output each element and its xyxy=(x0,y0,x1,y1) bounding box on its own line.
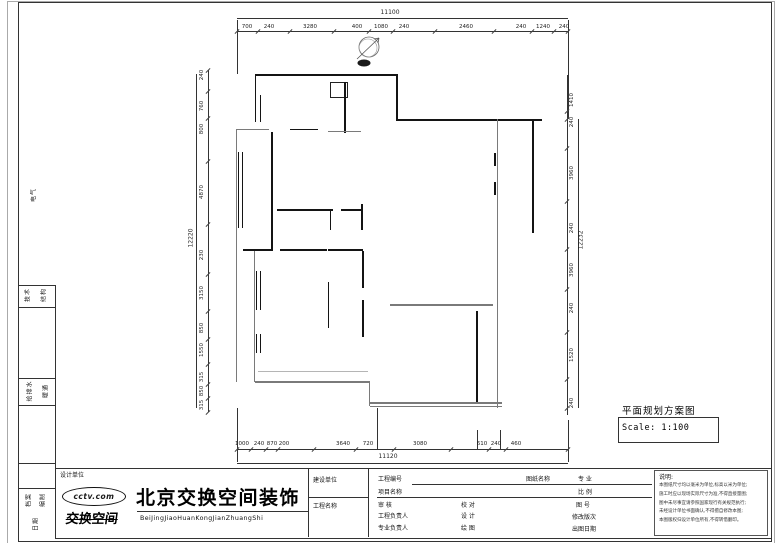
dim-label-left: 3150 xyxy=(199,286,205,300)
scale-row-label: 比 例 xyxy=(578,487,592,496)
drawing-title: 平面规划方案图 xyxy=(622,403,696,417)
wall-segment xyxy=(396,74,398,121)
major-label: 专 业 xyxy=(578,474,592,483)
drawing-frame xyxy=(18,2,772,542)
wall-segment xyxy=(361,204,363,230)
review-label: 审 核 xyxy=(378,500,392,509)
note-line: 本图纸尺寸均以毫米为单位,标高以米为单位; xyxy=(659,482,765,491)
dim-label-left: 760 xyxy=(199,101,205,112)
line xyxy=(308,497,368,498)
wall-segment xyxy=(330,210,331,230)
wall-segment xyxy=(341,209,362,211)
dim-label-bottom: 240 xyxy=(491,441,502,447)
sheet-name-label: 图纸名称 xyxy=(526,474,550,483)
dim-label-right: 1410 xyxy=(569,93,575,107)
discipline-lead-label: 专业负责人 xyxy=(378,523,408,532)
dim-label-left: 240 xyxy=(199,70,205,81)
line xyxy=(18,378,55,379)
dim-label-right: 3960 xyxy=(569,166,575,180)
notes-heading: 说明: xyxy=(659,472,673,481)
line xyxy=(237,408,238,462)
signoff-label: 日期 xyxy=(31,517,40,531)
wall-segment xyxy=(362,251,364,288)
dim-label-top: 1080 xyxy=(374,24,388,30)
dim-label-top: 1240 xyxy=(536,24,550,30)
overall-dim-top: 11100 xyxy=(380,9,399,16)
line xyxy=(237,463,568,464)
signoff-label: 技术 xyxy=(23,288,32,302)
wall-segment xyxy=(494,182,496,195)
wall-segment xyxy=(255,74,256,97)
overall-dim-bottom: 11120 xyxy=(378,453,397,460)
wall-segment xyxy=(260,95,261,122)
cctv-logo-text: cctv.com xyxy=(73,492,114,501)
design-label: 设 计 xyxy=(461,511,475,520)
cctv-logo: cctv.com xyxy=(62,487,126,506)
dim-label-bottom: 870 xyxy=(267,441,278,447)
signoff-label: 结构 xyxy=(39,288,48,302)
wall-segment xyxy=(243,249,273,251)
wall-segment xyxy=(242,152,243,228)
drawing-scale: Scale: 1:100 xyxy=(622,423,689,433)
wall-segment xyxy=(370,402,502,404)
wall-segment xyxy=(328,282,329,328)
dim-label-left: 315 xyxy=(199,400,205,411)
exchange-space-logo: 交换空间 xyxy=(65,508,120,527)
note-line: 未经设计单位书面确认,不得擅自修改本图; xyxy=(659,508,765,517)
line xyxy=(567,75,568,415)
dim-label-left: 800 xyxy=(199,124,205,135)
project-name-label: 工程名称 xyxy=(313,501,337,510)
wall-segment xyxy=(476,311,478,403)
wall-segment xyxy=(271,132,273,250)
dim-label-bottom: 460 xyxy=(511,441,522,447)
company-name: 北京交换空间装饰 xyxy=(136,483,300,510)
overall-dim-left: 12220 xyxy=(188,228,195,247)
dim-label-top: 2460 xyxy=(459,24,473,30)
company-pinyin: BeiJingJiaoHuanKongJianZhuangShi xyxy=(140,515,263,522)
overall-dim-right: 12232 xyxy=(578,230,585,249)
wall-segment xyxy=(255,95,256,122)
dim-label-left: 230 xyxy=(199,250,205,261)
dim-label-left: 4870 xyxy=(199,185,205,199)
dim-label-bottom: 1000 xyxy=(235,441,249,447)
note-line: 图中未尽事宜请参照国家现行有关规范执行; xyxy=(659,500,765,509)
wall-segment xyxy=(237,129,269,130)
dim-label-bottom: 200 xyxy=(279,441,290,447)
check-label: 校 对 xyxy=(461,500,475,509)
dim-label-top: 240 xyxy=(559,24,570,30)
design-unit-label: 设计单位 xyxy=(60,470,84,479)
line xyxy=(18,488,55,489)
dim-label-bottom: 240 xyxy=(254,441,265,447)
drawing-sheet: 7002403280400108024024602401240240100024… xyxy=(0,0,780,543)
line xyxy=(237,18,568,19)
dim-label-left: 315 xyxy=(199,372,205,383)
line xyxy=(412,484,652,485)
line xyxy=(568,420,569,462)
signoff-label: 电气 xyxy=(29,188,38,202)
line xyxy=(18,285,55,286)
dim-label-right: 240 xyxy=(569,398,575,409)
north-arrow-icon xyxy=(351,35,385,68)
signoff-label: 档案 xyxy=(24,493,33,507)
project-no-label: 工程编号 xyxy=(378,474,402,483)
notes-lines: 本图纸尺寸均以毫米为单位,标高以米为单位;施工时应以现场实际尺寸为准,不得直接量… xyxy=(659,482,765,526)
dim-label-top: 700 xyxy=(242,24,253,30)
dim-label-right: 240 xyxy=(569,117,575,128)
wall-segment xyxy=(255,381,370,383)
dim-label-right: 1520 xyxy=(569,348,575,362)
line xyxy=(18,307,55,308)
note-line: 本图版权归设计单位所有,不得转借翻印。 xyxy=(659,517,765,526)
wall-segment xyxy=(260,334,261,353)
wall-segment xyxy=(532,121,534,233)
dim-label-top: 240 xyxy=(516,24,527,30)
wall-segment xyxy=(328,249,363,251)
dim-label-right: 3960 xyxy=(569,263,575,277)
line xyxy=(578,119,579,408)
line xyxy=(18,463,55,464)
wall-segment xyxy=(494,153,496,166)
wall-segment xyxy=(258,371,368,372)
project-lead-label: 工程负责人 xyxy=(378,511,408,520)
dim-label-right: 240 xyxy=(569,223,575,234)
wall-segment xyxy=(396,119,542,121)
wall-segment xyxy=(290,129,318,131)
wall-segment xyxy=(362,300,364,337)
dim-label-top: 400 xyxy=(352,24,363,30)
client-label: 建设单位 xyxy=(313,475,337,484)
dim-label-bottom: 610 xyxy=(477,441,488,447)
wall-segment xyxy=(238,152,239,228)
dim-label-right: 240 xyxy=(569,303,575,314)
signoff-label: 编制 xyxy=(38,493,47,507)
revision-label: 修改版次 xyxy=(572,512,596,521)
wall-segment xyxy=(255,74,398,76)
line xyxy=(308,468,309,537)
issue-date-label: 出图日期 xyxy=(572,524,596,533)
draft-label: 绘 图 xyxy=(461,523,475,532)
line xyxy=(18,405,55,406)
line xyxy=(237,31,568,32)
floor-plan: 7002403280400108024024602401240240100024… xyxy=(0,0,780,543)
dim-label-bottom: 720 xyxy=(363,441,374,447)
line xyxy=(377,408,378,449)
line xyxy=(196,74,197,408)
wall-segment xyxy=(370,406,502,407)
signoff-label: 暖通 xyxy=(41,384,50,398)
wall-segment xyxy=(260,271,261,310)
wall-segment xyxy=(256,271,257,310)
wall-segment xyxy=(344,82,346,133)
wall-segment xyxy=(328,131,361,132)
wall-segment xyxy=(369,381,370,406)
line xyxy=(137,511,309,512)
dim-label-left: 850 xyxy=(199,386,205,397)
wall-segment xyxy=(277,209,333,211)
dim-label-top: 240 xyxy=(264,24,275,30)
line xyxy=(208,70,209,412)
wall-segment xyxy=(497,119,498,408)
signoff-label: 给排水 xyxy=(25,380,34,401)
dim-label-top: 3280 xyxy=(303,24,317,30)
line xyxy=(237,449,568,450)
wall-segment xyxy=(390,304,493,306)
line xyxy=(237,20,238,74)
dim-label-bottom: 3640 xyxy=(336,441,350,447)
line xyxy=(368,468,369,537)
dim-label-top: 240 xyxy=(399,24,410,30)
dim-label-bottom: 3080 xyxy=(413,441,427,447)
item-name-label: 项目名称 xyxy=(378,487,402,496)
sheet-no-label: 图 号 xyxy=(576,500,590,509)
wall-segment xyxy=(280,249,327,251)
note-line: 施工时应以现场实际尺寸为准,不得直接量图; xyxy=(659,491,765,500)
line xyxy=(377,497,652,498)
line xyxy=(55,285,56,537)
wall-segment xyxy=(256,334,257,353)
dim-label-left: 1550 xyxy=(199,343,205,357)
wall-segment xyxy=(254,251,255,382)
dim-label-left: 850 xyxy=(199,323,205,334)
